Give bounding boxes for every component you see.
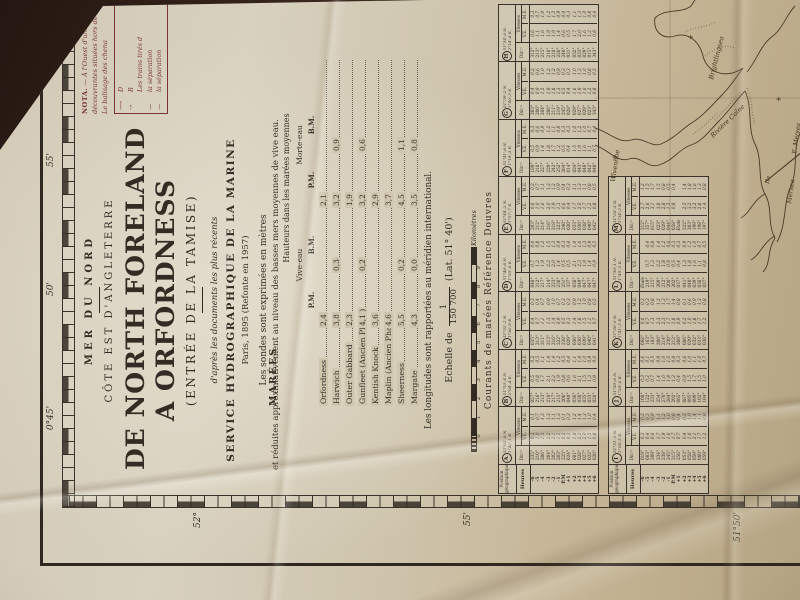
neatline-outer-top — [40, 0, 43, 566]
tide-value: 3,7 — [384, 180, 393, 220]
speed-subheaders: V.E.M.E. — [521, 178, 528, 216]
speeds-header: VitessesV.E.M.E. — [516, 350, 529, 388]
tide-value: 0,2 — [358, 245, 367, 285]
neap-speed-header: M.E. — [522, 63, 528, 81]
latitude-label: 55' — [463, 512, 473, 544]
station-letter: A — [502, 453, 512, 464]
speeds-header: VitessesV.E.M.E. — [516, 408, 529, 446]
neap-speed-header: M.E. — [522, 408, 528, 426]
speeds-header: VitessesV.E.M.E. — [516, 235, 529, 273]
speeds-header: VitessesV.E.M.E. — [516, 178, 529, 216]
station-letter: D — [502, 281, 512, 292]
tide-rows: Orfordness2,42,1Harwich3,80,33,20,9Outer… — [318, 52, 422, 408]
scale-tick-number: 6 — [476, 322, 482, 326]
nota-legend-line: ⇢R — [127, 0, 137, 110]
station-letter-circle: F — [502, 166, 512, 176]
chart-subtitle: (ENTRÉE DE LA TAMISE) — [184, 130, 198, 470]
spring-speed-header: V.E. — [522, 426, 528, 445]
spring-speed-header: V.E. — [522, 253, 528, 272]
title-rule — [99, 287, 100, 313]
coastal-map: +++ WivenhoeBrightlingseaRivière ColneIl… — [595, 0, 800, 500]
station-coordinates: 51°39',2 N.1°40',3 E. — [502, 85, 512, 108]
dotted-leader — [404, 60, 405, 406]
scale-tick-number: 2 — [476, 397, 482, 401]
hours-column: Position géographiqueHeures-6-5-4-3-2-1P… — [498, 464, 599, 494]
current-table: A52°02',0 N.1°42',1 E.Dir.ᵒⁿVitessesV.E.… — [498, 407, 599, 465]
neap-speed-header: M.E. — [522, 178, 528, 196]
spring-tide-header: Vive-eau — [295, 210, 304, 320]
table-row: Maplin (Ancien Phare)4,63,7 — [383, 52, 396, 408]
legend-text: D — [117, 87, 125, 92]
direction-header: Dir.ᵒⁿ — [516, 445, 529, 464]
sea-name: MER DU NORD — [84, 130, 95, 470]
neap-speed-header: M.E. — [522, 120, 528, 138]
tide-place-name: Outer Gabbard — [345, 342, 354, 406]
nota-note: NOTA. — À l'Ouest d'une ligne joig décou… — [80, 0, 111, 114]
tide-place-name: Orfordness — [319, 358, 328, 406]
map-place-label: Rivière Colne — [708, 103, 746, 141]
tide-value: 0,9 — [332, 125, 341, 165]
tide-value: 2,9 — [371, 180, 380, 220]
title-rule2 — [202, 287, 203, 313]
spring-speed-header: V.E. — [522, 311, 528, 330]
nota-legend-line: —la séparation — [146, 0, 156, 110]
tide-value: 4,6 — [384, 300, 393, 340]
tide-place-name: Sheerness — [397, 361, 406, 406]
tide-value: 0,3 — [332, 245, 341, 285]
legend-symbol: ⟶ — [117, 92, 127, 110]
scale-tick-number: 7 — [476, 303, 482, 307]
graduated-border-top — [62, 0, 75, 508]
station-coordinates: 51°53',4 N.2°04',4 E. — [502, 372, 512, 395]
current-table: C51°52',1 N.1°36',9 E.Dir.ᵒⁿVitessesV.E.… — [498, 292, 599, 350]
current-table: B51°53',4 N.2°04',4 E.Dir.ᵒⁿVitessesV.E.… — [498, 349, 599, 407]
station-letter: C — [502, 338, 512, 349]
station-letter-circle: C — [502, 339, 512, 349]
direction-header: Dir.ᵒⁿ — [516, 273, 529, 292]
position-header: Position géographique — [499, 465, 517, 493]
dotted-leader — [417, 60, 418, 406]
station-coordinates: 51°41',6 N.1°19',3 E. — [502, 142, 512, 165]
station-coordinates: 51°44',2 N.1°57',7 E. — [502, 200, 512, 223]
current-table-subheader: Dir.ᵒⁿVitessesV.E.M.E. — [516, 63, 530, 120]
tide-place-name: Harwich — [332, 368, 341, 406]
tide-value: 0,2 — [397, 245, 406, 285]
tide-value: 4,5 — [397, 180, 406, 220]
tide-value: 3,8 — [332, 300, 341, 340]
station-letter: G — [502, 108, 512, 119]
current-table-subheader: Dir.ᵒⁿVitessesV.E.M.E. — [516, 5, 530, 62]
map-place-label: Brightlingsea — [707, 35, 726, 81]
direction-header: Dir.ᵒⁿ — [516, 158, 529, 177]
longitude-label: 0°45' — [46, 406, 56, 430]
tide-value: 1,9 — [345, 180, 354, 220]
scale-label: Echelle de — [444, 332, 455, 382]
neap-speed-header: M.E. — [522, 293, 528, 311]
station-coordinates: 51°34',0 N.2°14',0 E. — [502, 27, 512, 50]
nota-line2: découvrantes situées hors de — [91, 16, 99, 114]
current-table-subheader: Dir.ᵒⁿVitessesV.E.M.E. — [516, 120, 530, 177]
spring-speed-header: V.E. — [522, 81, 528, 100]
spring-speed-header: V.E. — [522, 23, 528, 42]
direction-header: Dir.ᵒⁿ — [516, 330, 529, 349]
station-letter: F — [502, 166, 512, 177]
neap-speed-header: M.E. — [522, 5, 528, 23]
station-coordinates: 52°02',0 N.1°42',1 E. — [502, 430, 512, 453]
current-table-subheader: Dir.ᵒⁿVitessesV.E.M.E. — [516, 178, 530, 235]
table-row: Orfordness2,42,1 — [318, 52, 331, 408]
current-table-header: C51°52',1 N.1°36',9 E. — [499, 293, 516, 350]
table-row: Sheerness5,50,24,51,1 — [396, 52, 409, 408]
legend-text: la séparation — [155, 50, 163, 92]
station-letter: H — [502, 51, 512, 62]
chart-title-line2: A ORFORDNESS — [151, 130, 181, 470]
tide-value: 3,5 — [410, 180, 419, 220]
spring-speed-header: V.E. — [522, 138, 528, 157]
tide-value: 3,2 — [332, 180, 341, 220]
chart-paper: 0°45'50'55'1° 52°55'51°50' NOTA. — À l'O… — [0, 0, 800, 600]
scale-bar: 0123456789 Kilomètres — [468, 212, 484, 452]
tide-value: 0,6 — [358, 125, 367, 165]
current-table: E51°44',2 N.1°57',7 E.Dir.ᵒⁿVitessesV.E.… — [498, 177, 599, 235]
latitude-label: 52° — [193, 512, 203, 544]
station-letter: E — [502, 223, 512, 234]
scale-tick-number: 9 — [476, 266, 482, 270]
station-letter-circle: G — [502, 109, 512, 119]
station-letter-circle: E — [502, 224, 512, 234]
speed-subheaders: V.E.M.E. — [521, 408, 528, 446]
station-letter-circle: B — [502, 396, 512, 406]
longitude-label: 1° — [46, 26, 56, 36]
currents-heading: Courants de marées Référence Douvres — [484, 130, 494, 470]
chart-content-rotated: 0°45'50'55'1° 52°55'51°50' NOTA. — À l'O… — [0, 0, 800, 600]
tide-value: 4,3 — [410, 300, 419, 340]
speeds-header: VitessesV.E.M.E. — [516, 5, 529, 43]
svg-text:+: + — [687, 34, 695, 40]
neatline-outer-left — [40, 563, 800, 566]
longitude-label: 55' — [46, 153, 56, 167]
current-table-header: B51°53',4 N.2°04',4 E. — [499, 350, 516, 407]
current-table-header: F51°41',6 N.1°19',3 E. — [499, 120, 516, 177]
legend-text: la séparation — [146, 50, 154, 92]
scale-tick-number: 8 — [476, 285, 482, 289]
docs-note: d'après les documents les plus récents — [210, 130, 220, 470]
nota-legend-box: ⟶D⇢RLes trains tirés d—la séparation—la … — [114, 0, 168, 114]
scale-denominator: 150 700 — [449, 287, 459, 326]
nota-legend-line: —la séparation — [155, 0, 165, 110]
tide-value: 3,6 — [371, 300, 380, 340]
nota-line1: — À l'Ouest d'une ligne joig — [81, 0, 89, 88]
map-place-label: E. Mersea — [791, 122, 800, 155]
scale-numerator: 1 — [439, 304, 449, 309]
neap-speed-header: M.E. — [522, 350, 528, 368]
current-table: D51°46',6 N.1°35',0 E.Dir.ᵒⁿVitessesV.E.… — [498, 234, 599, 292]
station-letter-circle: D — [502, 281, 512, 291]
dotted-leader — [339, 60, 340, 406]
spring-speed-header: V.E. — [522, 196, 528, 215]
dotted-leader — [326, 60, 327, 406]
table-row: Margate4,30,03,50,8 — [409, 52, 422, 408]
tide-table-subtitle: Hauteurs dans les marées moyennes — [282, 58, 291, 318]
speeds-header: VitessesV.E.M.E. — [516, 120, 529, 158]
current-table-subheader: Dir.ᵒⁿVitessesV.E.M.E. — [516, 408, 530, 465]
nota-legend-line: Les trains tirés d — [136, 0, 146, 110]
current-table-header: A52°02',0 N.1°42',1 E. — [499, 408, 516, 465]
chart-title-line1: DE NORTH FORELAND — [121, 130, 151, 470]
spring-speed-header: V.E. — [522, 368, 528, 387]
speed-subheaders: V.E.M.E. — [521, 235, 528, 273]
station-letter: B — [502, 396, 512, 407]
speed-subheaders: V.E.M.E. — [521, 5, 528, 43]
direction-header: Dir.ᵒⁿ — [516, 43, 529, 62]
edition-note: Paris, 1895 (Refonte en 1957) — [241, 130, 251, 470]
coast-name: CÔTE EST D'ANGLETERRE — [104, 130, 115, 470]
scale-lat-ref: (Lat. 51° 40') — [444, 217, 455, 281]
longitude-note: Les longitudes sont rapportées au méridi… — [424, 130, 434, 470]
table-row: Outer Gabbard2,31,9 — [344, 52, 357, 408]
scale-bar-unit: Kilomètres — [470, 210, 478, 246]
col-header-pm1: P.M. — [307, 280, 316, 320]
station-coordinates: 51°52',1 N.1°36',9 E. — [502, 315, 512, 338]
direction-header: Dir.ᵒⁿ — [516, 388, 529, 407]
current-table-header: D51°46',6 N.1°35',0 E. — [499, 235, 516, 292]
scale-fraction: 1 150 700 — [440, 287, 459, 326]
scale-tick-number: 1 — [476, 416, 482, 420]
title-block: MER DU NORD CÔTE EST D'ANGLETERRE DE NOR… — [84, 130, 281, 470]
photo-of-nautical-chart: { "colors":{"paper":"#d2c9b5","ink":"#33… — [0, 0, 800, 600]
current-table-header: H51°34',0 N.2°14',0 E. — [499, 5, 516, 62]
current-table-header: E51°44',2 N.1°57',7 E. — [499, 178, 516, 235]
svg-text:+: + — [775, 96, 783, 102]
station-coordinates: 51°46',6 N.1°35',0 E. — [502, 257, 512, 280]
soundings-note-line2: et réduites approximativement au niveau … — [271, 130, 281, 470]
legend-symbol: — — [146, 92, 156, 110]
tide-place-name: Margate — [410, 368, 419, 406]
tide-value: 1,1 — [397, 125, 406, 165]
tide-value: 3,2 — [358, 180, 367, 220]
nota-line3: Le balisage des chena — [101, 40, 109, 114]
current-table-header: G51°39',2 N.1°40',3 E. — [499, 63, 516, 120]
scale-tick-number: 0 — [476, 434, 482, 438]
tide-value: 2,3 — [345, 300, 354, 340]
current-table: F51°41',6 N.1°19',3 E.Dir.ᵒⁿVitessesV.E.… — [498, 119, 599, 177]
current-table-subheader: Dir.ᵒⁿVitessesV.E.M.E. — [516, 235, 530, 292]
coastline-paths — [595, 0, 800, 272]
hours-header: Heures — [517, 465, 531, 493]
table-row: Gunfleet (Ancien Phare)4,10,23,20,6 — [357, 52, 370, 408]
neap-tide-header: Morte-eau — [295, 90, 304, 200]
tide-value: 0,0 — [410, 245, 419, 285]
map-place-label: Ile — [764, 175, 773, 185]
tide-value: 2,4 — [319, 300, 328, 340]
direction-header: Dir.ᵒⁿ — [516, 100, 529, 119]
scale-tick-number: 5 — [476, 341, 482, 345]
tide-value: 2,1 — [319, 180, 328, 220]
tide-value: 5,5 — [397, 300, 406, 340]
nota-legend-line: ⟶D — [117, 0, 127, 110]
legend-text: R — [127, 87, 135, 92]
col-header-bm1: B.M. — [307, 225, 316, 265]
speed-subheaders: V.E.M.E. — [521, 293, 528, 331]
map-place-label: Mersea — [785, 179, 797, 206]
speed-subheaders: V.E.M.E. — [521, 120, 528, 158]
neap-speed-header: M.E. — [522, 235, 528, 253]
tide-place-name: Kentish Knock — [371, 345, 380, 406]
service-name: SERVICE HYDROGRAPHIQUE DE LA MARINE — [225, 130, 237, 470]
speeds-header: VitessesV.E.M.E. — [516, 63, 529, 101]
tide-value: 0,8 — [410, 125, 419, 165]
soundings-note-line1: Les sondes sont exprimées en mètres — [259, 130, 269, 470]
current-tables-bank1: Position géographiqueHeures-6-5-4-3-2-1P… — [498, 4, 599, 494]
legend-symbol: ⇢ — [127, 92, 137, 110]
speed-subheaders: V.E.M.E. — [521, 63, 528, 101]
current-table-subheader: Dir.ᵒⁿVitessesV.E.M.E. — [516, 350, 530, 407]
current-table-subheader: Dir.ᵒⁿVitessesV.E.M.E. — [516, 293, 530, 350]
current-table: H51°34',0 N.2°14',0 E.Dir.ᵒⁿVitessesV.E.… — [498, 4, 599, 62]
scale-tick-number: 3 — [476, 378, 482, 382]
speed-subheaders: V.E.M.E. — [521, 350, 528, 388]
nota-word: NOTA. — [81, 88, 89, 114]
direction-header: Dir.ᵒⁿ — [516, 215, 529, 234]
table-row: Harwich3,80,33,20,9 — [331, 52, 344, 408]
col-header-bm2: B.M. — [307, 105, 316, 145]
legend-symbol: — — [155, 92, 165, 110]
chart-title: DE NORTH FORELAND A ORFORDNESS — [121, 130, 180, 470]
speeds-header: VitessesV.E.M.E. — [516, 293, 529, 331]
table-row: Kentish Knock3,62,9 — [370, 52, 383, 408]
station-letter-circle: H — [502, 51, 512, 61]
tide-value: 4,1 — [358, 300, 367, 340]
scale-tick-number: 4 — [476, 359, 482, 363]
station-letter-circle: A — [502, 454, 512, 464]
longitude-label: 50' — [46, 282, 56, 296]
tide-table-title: MARÉES — [268, 347, 279, 406]
current-table: G51°39',2 N.1°40',3 E.Dir.ᵒⁿVitessesV.E.… — [498, 62, 599, 120]
scale-statement: Echelle de 1 150 700 (Lat. 51° 40') — [440, 130, 459, 470]
church-marks: +++ — [611, 34, 783, 160]
latitude-label: 51°50' — [733, 512, 743, 544]
legend-text: Les trains tirés d — [136, 37, 144, 92]
col-header-pm2: P.M. — [307, 160, 316, 200]
